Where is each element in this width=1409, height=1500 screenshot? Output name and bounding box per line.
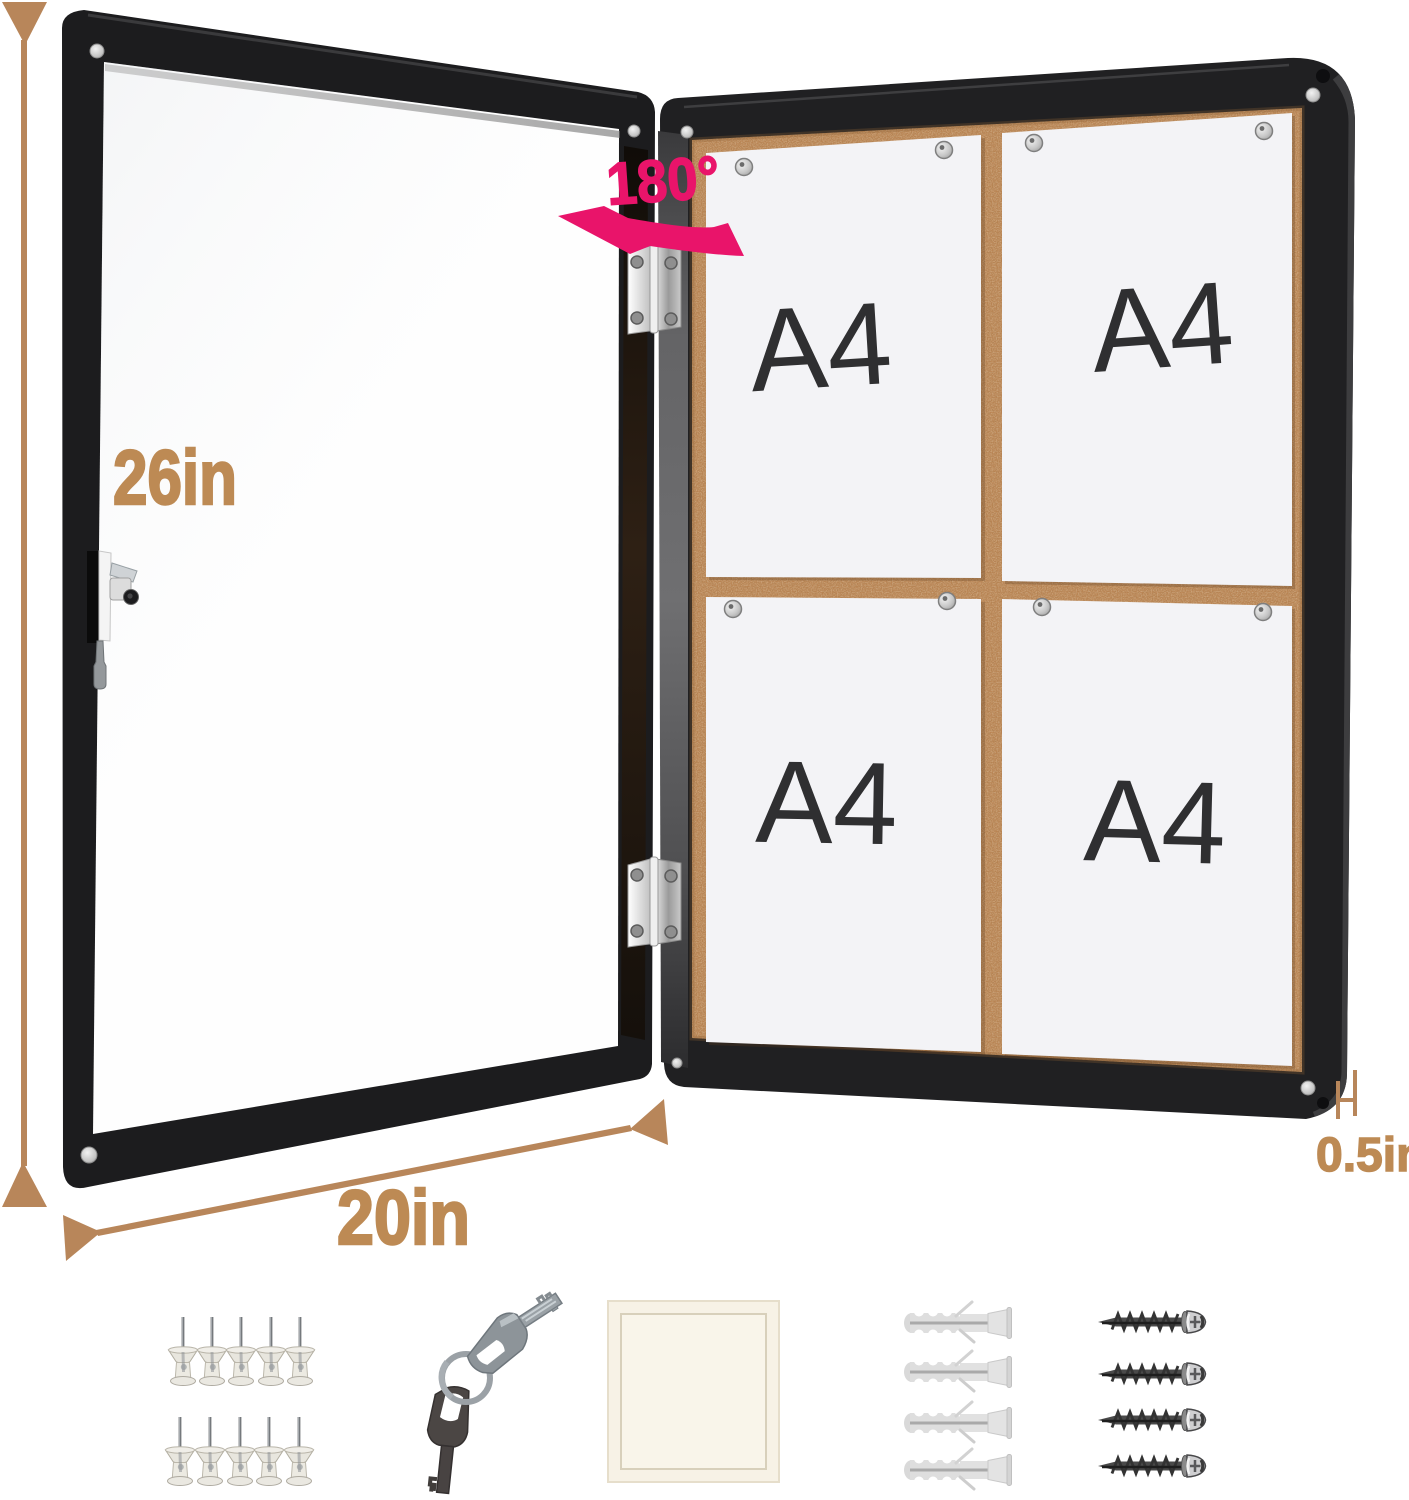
svg-text:A4: A4 [746, 277, 896, 416]
svg-text:A4: A4 [1087, 256, 1238, 397]
svg-text:A4: A4 [755, 736, 899, 869]
svg-text:26in: 26in [113, 435, 237, 521]
svg-text:180°: 180° [604, 143, 721, 218]
svg-text:A4: A4 [1082, 754, 1227, 889]
svg-text:20in: 20in [337, 1175, 470, 1261]
svg-text:0.5in: 0.5in [1316, 1129, 1409, 1182]
